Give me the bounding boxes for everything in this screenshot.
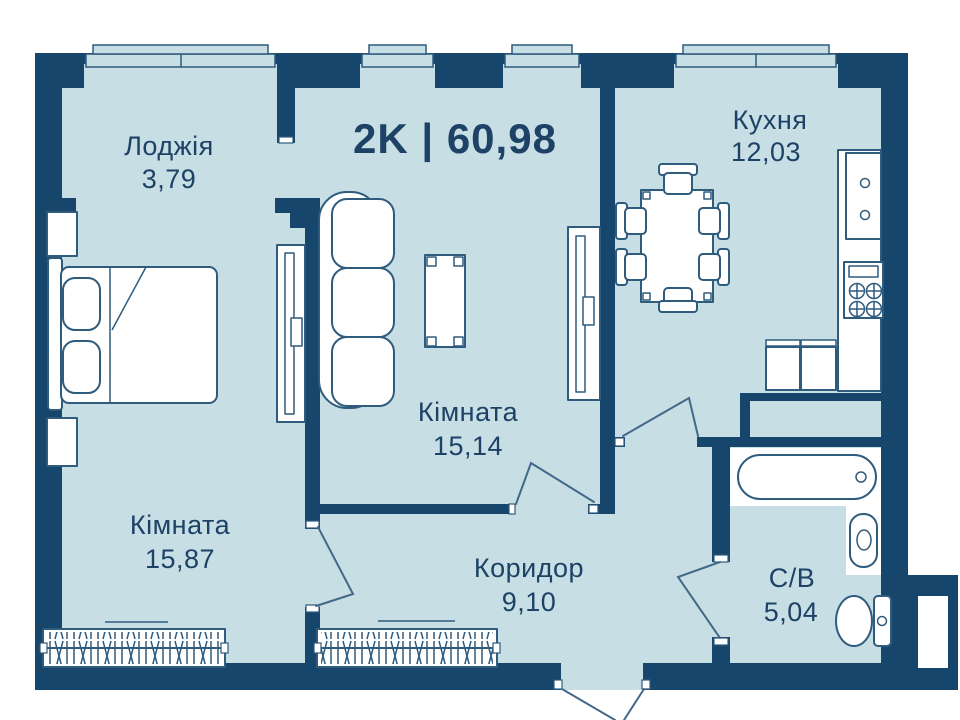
room-label-living: Кімната <box>418 397 519 427</box>
bathroom-sink <box>846 506 881 575</box>
dining-table <box>641 190 713 302</box>
room-label-corridor: Коридор <box>474 553 584 583</box>
room-label-kitchen: Кухня <box>733 105 808 135</box>
dishwasher <box>801 340 836 390</box>
bathtub <box>730 448 881 506</box>
kitchen-sink <box>846 153 881 239</box>
floor-plan: 2K | 60,98 Лоджія 3,79 Кухня 12,03 Кімна… <box>0 0 960 720</box>
plan-title: 2K | 60,98 <box>353 115 557 163</box>
door-entrance <box>562 689 644 720</box>
room-area-living: 15,14 <box>433 431 503 461</box>
chair-top <box>659 164 697 194</box>
window-loggia <box>84 45 277 88</box>
nightstand-bottom <box>47 418 77 466</box>
window-living-2 <box>503 45 581 88</box>
chair-right-1 <box>699 203 729 239</box>
bed <box>48 258 217 410</box>
room-area-corridor: 9,10 <box>502 587 557 617</box>
room-area-bedroom: 15,87 <box>145 544 215 574</box>
washing-machine <box>766 340 800 390</box>
window-living-1 <box>360 45 435 88</box>
room-area-bathroom: 5,04 <box>764 597 819 627</box>
coffee-table <box>425 255 465 347</box>
wardrobe-bedroom <box>277 245 305 422</box>
room-area-loggia: 3,79 <box>142 164 197 194</box>
nightstand-top <box>47 212 77 256</box>
closet-hangers-bedroom <box>40 622 228 667</box>
floor-plan-drawing: 2K | 60,98 Лоджія 3,79 Кухня 12,03 Кімна… <box>0 0 960 720</box>
wardrobe-living <box>568 227 600 400</box>
room-label-bathroom: С/В <box>769 563 816 593</box>
chair-right-2 <box>699 249 729 285</box>
toilet <box>836 596 891 646</box>
chair-left-2 <box>616 249 646 285</box>
sofa <box>319 192 394 408</box>
stove <box>844 262 883 318</box>
window-kitchen <box>674 45 838 88</box>
room-label-bedroom: Кімната <box>130 510 231 540</box>
chair-bottom <box>659 288 697 312</box>
room-label-loggia: Лоджія <box>124 131 214 161</box>
chair-left-1 <box>616 203 646 239</box>
exterior-shaft <box>908 575 958 690</box>
room-area-kitchen: 12,03 <box>731 137 801 167</box>
